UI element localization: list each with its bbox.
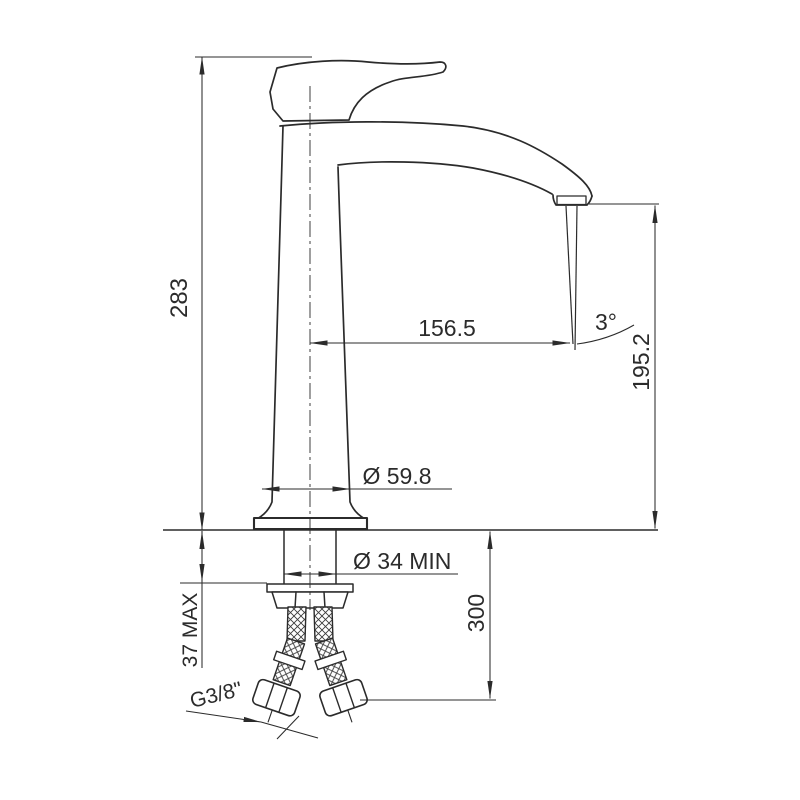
dim-label-thread-size: G3/8": [188, 678, 245, 713]
faucet-technical-drawing: 283 156.5 3° 195.2 Ø 59.8 Ø 34 MIN 300 3…: [0, 0, 800, 800]
aerator: [557, 196, 586, 205]
supply-hose-left: [247, 607, 317, 729]
thread-stub-left: [268, 710, 272, 722]
leader-thread-size: [186, 711, 318, 739]
hex-connector-left: [251, 678, 301, 717]
dim-overall-height: [195, 57, 312, 530]
faucet-spout-top-edge: [280, 122, 592, 196]
dim-label-base-diameter: Ø 59.8: [362, 463, 431, 489]
base-plate: [254, 518, 367, 529]
thread-stub-right: [348, 710, 352, 722]
dim-label-spout-reach: 156.5: [418, 315, 476, 341]
dim-label-max-deck-thickness: 37 MAX: [179, 593, 202, 668]
dim-label-overall-height: 283: [166, 278, 193, 318]
dim-label-min-hole-diameter: Ø 34 MIN: [353, 548, 451, 574]
faucet-spout-bottom-edge: [338, 162, 552, 194]
dim-label-stream-angle: 3°: [595, 309, 617, 335]
hex-connector-right: [319, 678, 369, 717]
dim-label-hose-drop: 300: [463, 594, 489, 632]
faucet-handle: [270, 61, 446, 121]
water-stream: [566, 206, 577, 350]
technical-drawing-page: 283 156.5 3° 195.2 Ø 59.8 Ø 34 MIN 300 3…: [0, 0, 800, 800]
supply-hose-right: [303, 607, 373, 729]
faucet-body-left-edge: [257, 126, 283, 519]
dim-label-spout-outlet-height: 195.2: [628, 333, 654, 391]
